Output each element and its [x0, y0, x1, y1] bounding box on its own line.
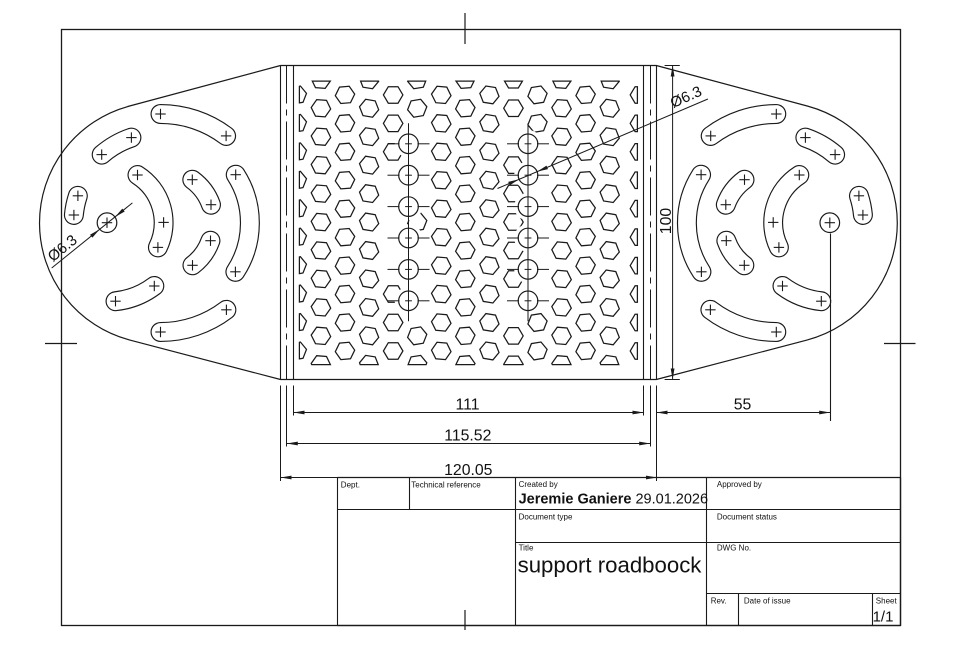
svg-text:Date of issue: Date of issue: [744, 596, 791, 605]
svg-text:Jeremie Ganiere 29.01.2026: Jeremie Ganiere 29.01.2026: [519, 492, 708, 508]
svg-text:Sheet: Sheet: [876, 596, 898, 605]
svg-text:Dept.: Dept.: [341, 480, 360, 489]
svg-text:Document type: Document type: [519, 513, 573, 522]
svg-text:Rev.: Rev.: [711, 596, 727, 605]
svg-text:120.05: 120.05: [444, 462, 493, 479]
svg-text:Approved by: Approved by: [717, 480, 762, 489]
svg-text:DWG No.: DWG No.: [717, 544, 751, 553]
svg-text:Created by: Created by: [519, 480, 558, 489]
svg-text:115.52: 115.52: [444, 428, 491, 445]
svg-text:55: 55: [734, 397, 752, 414]
svg-text:1/1: 1/1: [873, 609, 894, 626]
svg-text:Technical reference: Technical reference: [411, 480, 481, 489]
svg-text:111: 111: [455, 397, 479, 414]
svg-text:Title: Title: [519, 544, 534, 553]
svg-text:Document status: Document status: [717, 513, 777, 522]
svg-text:support roadboock: support roadboock: [518, 553, 703, 578]
svg-text:100: 100: [658, 208, 675, 235]
